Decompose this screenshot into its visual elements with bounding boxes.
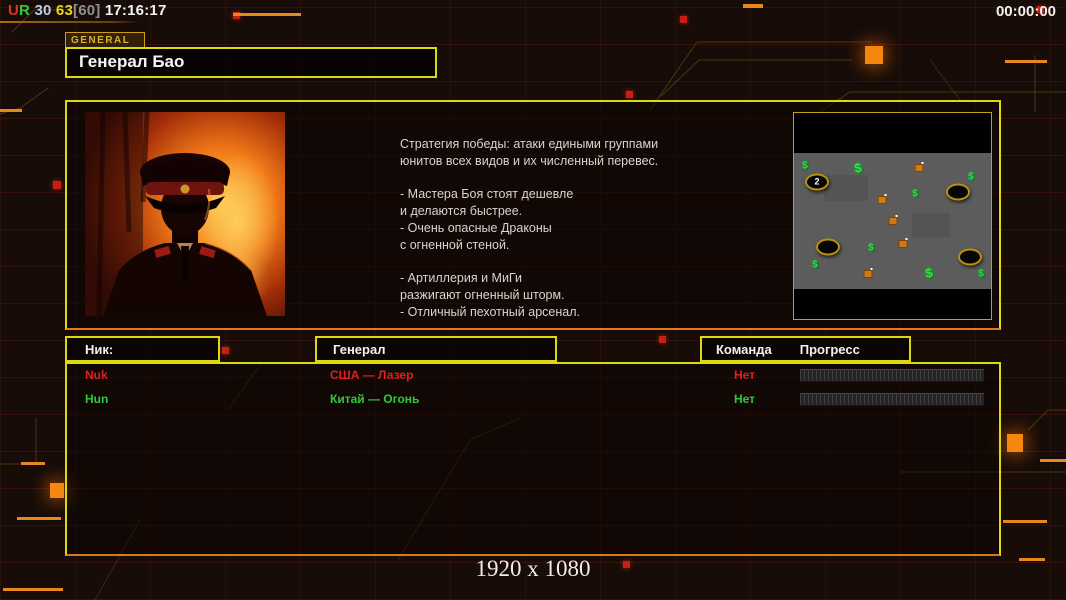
player-nick: Nuk (85, 368, 108, 382)
decor-orange-square (1007, 434, 1023, 452)
decor-orange-square (50, 483, 64, 498)
decor-orange-dash (21, 462, 45, 465)
general-title: Генерал Бао (65, 47, 437, 78)
hud-underline (0, 21, 140, 23)
decor-red-square (222, 347, 229, 354)
decor-orange-square (865, 46, 883, 64)
decor-red-square (680, 16, 687, 23)
hud-stat: 30 (30, 2, 51, 19)
general-description: Стратегия победы: атаки едиными группами… (400, 136, 730, 321)
player-progress-bar (800, 369, 984, 382)
hud-stat: U (8, 2, 19, 19)
player-team: Нет (734, 392, 755, 406)
minimap-tech-building-icon (889, 217, 898, 225)
player-row: Hun Китай — Огонь Нет (67, 391, 999, 409)
player-general: Китай — Огонь (330, 392, 419, 406)
minimap-supply-icon: $ (868, 243, 874, 254)
loading-screen: UR 30 63[60] 17:16:17 00:00:00 GENERAL Г… (0, 0, 1066, 600)
general-info-panel: Стратегия победы: атаки едиными группами… (65, 100, 1001, 330)
decor-orange-dash (3, 588, 63, 591)
minimap-items: $2$$$$$$$ (794, 113, 991, 319)
minimap-start-position: 2 (805, 174, 829, 191)
minimap-tech-building-icon (864, 270, 873, 278)
hud-stat: [60] (73, 2, 100, 19)
player-general: США — Лазер (330, 368, 413, 382)
minimap-supply-icon: $ (812, 260, 818, 271)
decor-red-square (626, 91, 633, 98)
resolution-label: 1920 x 1080 (0, 556, 1066, 582)
player-progress-bar (800, 393, 984, 406)
minimap-start-position (958, 249, 982, 266)
header-team-progress: Команда Прогресс (700, 336, 911, 362)
player-team: Нет (734, 368, 755, 382)
decor-orange-dash (0, 109, 22, 112)
hud-stat: R (19, 2, 30, 19)
minimap-start-position (946, 184, 970, 201)
decor-orange-dash (1003, 520, 1047, 523)
decor-orange-dash (17, 517, 61, 520)
decor-orange-dash (1040, 459, 1066, 462)
header-team-label: Команда (716, 342, 772, 357)
header-nick: Ник: (65, 336, 220, 362)
hud-stat: 63 (52, 2, 73, 19)
decor-orange-dash (233, 13, 301, 16)
player-row: Nuk США — Лазер Нет (67, 367, 999, 385)
hud-stat: 17:16:17 (100, 2, 166, 19)
header-progress-label: Прогресс (800, 342, 860, 357)
minimap-start-position (816, 239, 840, 256)
minimap-supply-icon: $ (853, 160, 863, 176)
player-nick: Hun (85, 392, 108, 406)
header-nick-label: Ник: (85, 342, 113, 357)
hud-top-left: UR 30 63[60] 17:16:17 (8, 2, 167, 19)
minimap: $2$$$$$$$ (793, 112, 992, 320)
header-general: Генерал (315, 336, 557, 362)
header-general-label: Генерал (333, 342, 385, 357)
minimap-supply-icon: $ (924, 265, 934, 281)
decor-red-square (53, 181, 61, 189)
tab-general[interactable]: GENERAL (65, 32, 145, 47)
decor-orange-dash (1005, 60, 1047, 63)
minimap-tech-building-icon (899, 240, 908, 248)
minimap-tech-building-icon (915, 164, 924, 172)
decor-red-square (659, 336, 666, 343)
minimap-supply-icon: $ (968, 172, 974, 183)
minimap-supply-icon: $ (802, 161, 808, 172)
decor-orange-dash (743, 4, 763, 8)
players-box: Nuk США — Лазер Нет Hun Китай — Огонь Не… (65, 362, 1001, 556)
general-portrait (85, 112, 285, 316)
minimap-tech-building-icon (878, 196, 887, 204)
match-timer: 00:00:00 (996, 3, 1056, 20)
minimap-supply-icon: $ (912, 189, 918, 200)
minimap-supply-icon: $ (978, 269, 984, 280)
